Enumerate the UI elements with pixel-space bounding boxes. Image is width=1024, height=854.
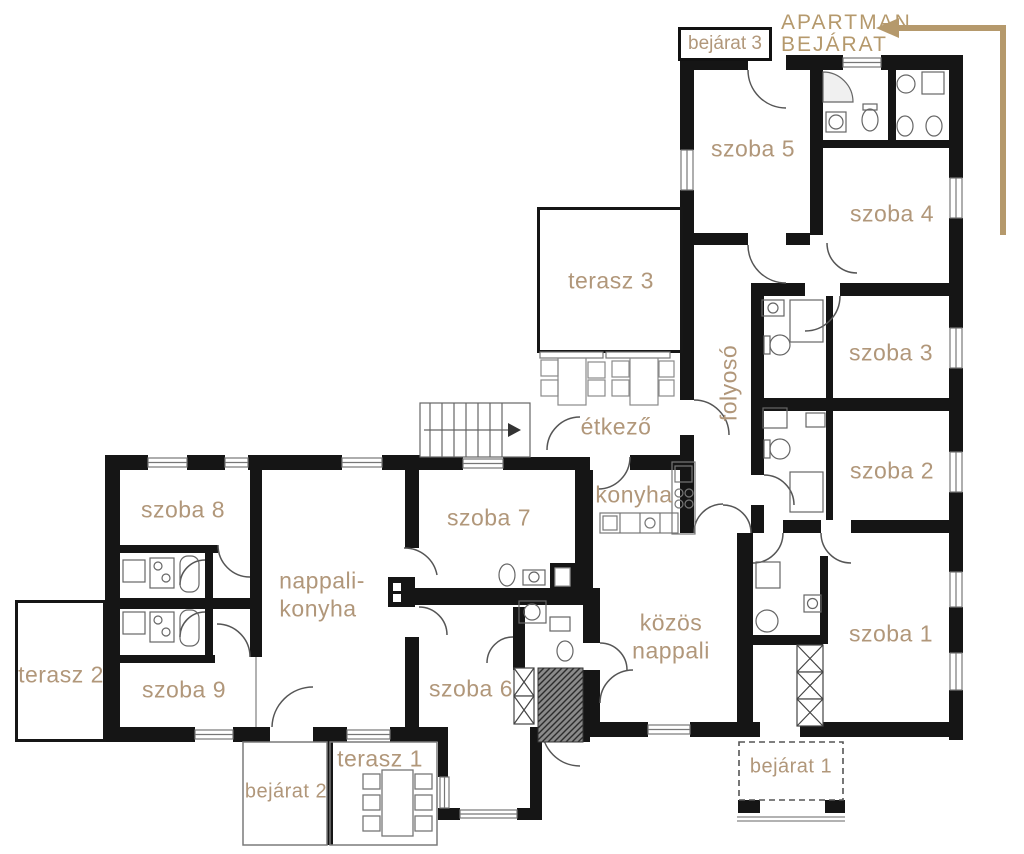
toilet-icon: [499, 564, 515, 586]
sink-icon: [897, 75, 915, 93]
room-label-folyoso: folyosó: [716, 345, 743, 421]
entrance-1-label: bejárat 1: [750, 756, 832, 779]
sink-icon: [756, 610, 778, 632]
dining-tables: [541, 358, 674, 405]
toilet-icon: [862, 109, 878, 131]
floor-plan: APARTMAN BEJÁRAT bejárat 3 szoba 5 szoba…: [0, 0, 1024, 854]
entrance-3-label-box: bejárat 3: [678, 27, 772, 61]
walls-layer: [105, 55, 963, 845]
room-label-terasz-2: terasz 2: [18, 662, 104, 689]
room-label-kozos-nappali-line2: nappali: [632, 638, 710, 665]
entrance-3-label: bejárat 3: [688, 33, 762, 55]
floor-plan-drawing: [0, 0, 1024, 854]
room-label-szoba-9: szoba 9: [142, 677, 226, 704]
room-label-szoba-4: szoba 4: [850, 201, 934, 228]
toilet-icon: [557, 641, 573, 661]
room-label-terasz-1: terasz 1: [337, 746, 423, 773]
terrace-table: [363, 770, 432, 836]
bathtub-icon: [180, 610, 199, 646]
room-label-szoba-6: szoba 6: [429, 676, 513, 703]
room-label-szoba-8: szoba 8: [141, 497, 225, 524]
room-label-etkezo: étkező: [581, 414, 652, 441]
room-label-szoba-5: szoba 5: [711, 136, 795, 163]
fireplace-icon: [388, 577, 415, 607]
entrance-2-label: bejárat 2: [245, 781, 327, 804]
room-label-nappali-konyha-line1: nappali-: [279, 568, 365, 595]
stairs: [420, 403, 530, 457]
toilet-icon: [770, 439, 790, 459]
room-label-szoba-2: szoba 2: [850, 458, 934, 485]
room-label-szoba-7: szoba 7: [447, 505, 531, 532]
room-label-szoba-1: szoba 1: [849, 621, 933, 648]
room-label-terasz-3: terasz 3: [568, 268, 654, 295]
shower-icon: [823, 72, 853, 102]
toilet-icon: [897, 116, 913, 136]
apartment-entrance-annotation-line2: BEJÁRAT: [781, 33, 888, 57]
room-label-szoba-3: szoba 3: [849, 340, 933, 367]
room-label-konyha: konyha: [595, 482, 672, 509]
apartment-entrance-annotation-line1: APARTMAN: [781, 11, 912, 35]
hatched-area: [538, 668, 583, 742]
room-label-nappali-konyha-line2: konyha: [279, 596, 356, 623]
stairs-direction-arrow-icon: [508, 423, 521, 437]
room-label-kozos-nappali-line1: közös: [640, 610, 703, 637]
toilet-icon: [770, 335, 790, 355]
